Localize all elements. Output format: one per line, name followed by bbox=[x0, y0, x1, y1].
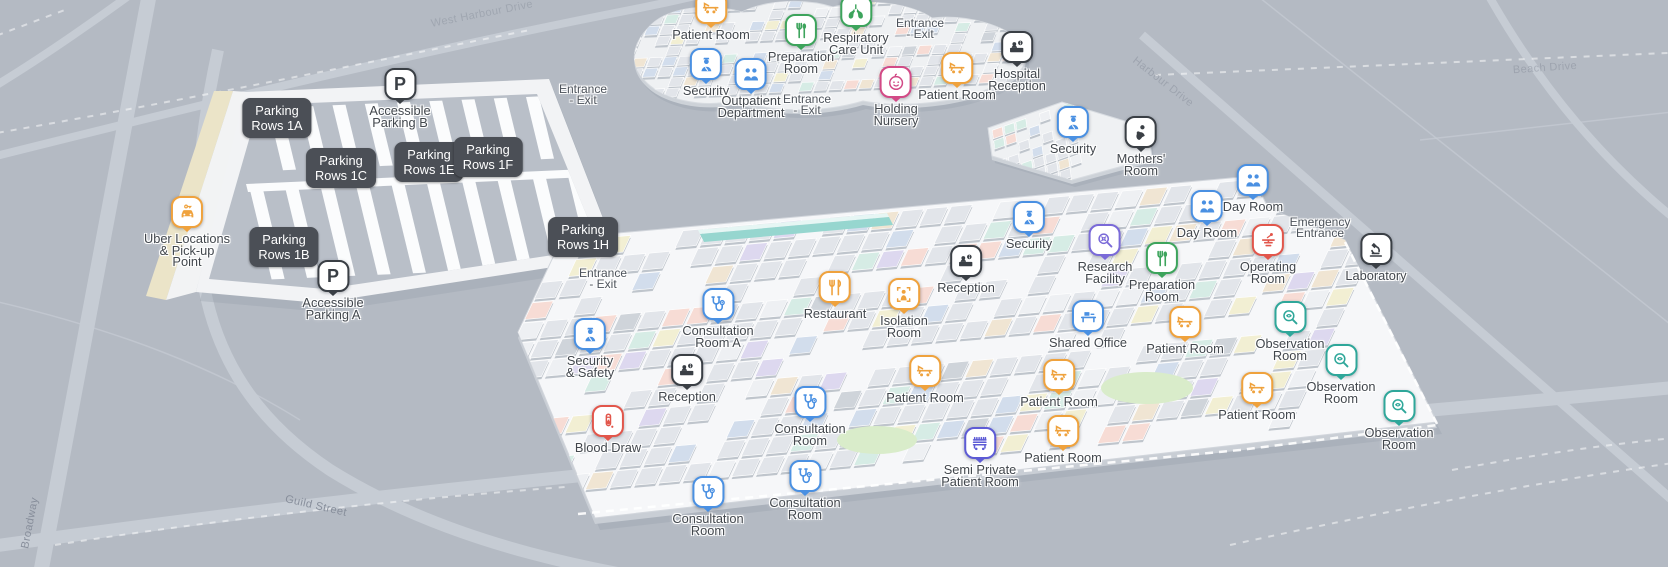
pin-consultation-room-1[interactable]: Consultation Room bbox=[774, 386, 845, 446]
microscope-icon bbox=[1360, 233, 1392, 265]
map-overlay: BroadwayGuild StreetHarbour DriveBeach D… bbox=[0, 0, 1668, 567]
pin-security-east[interactable]: Security bbox=[1050, 106, 1096, 155]
pin-label: Hospital Reception bbox=[988, 68, 1046, 91]
steth-icon bbox=[702, 288, 734, 320]
pin-outpatient-department[interactable]: Outpatient Department bbox=[718, 58, 785, 118]
bed-icon bbox=[695, 0, 727, 24]
pin-label: Isolation Room bbox=[880, 315, 928, 338]
pin-label: Reception bbox=[937, 282, 995, 294]
eye-icon bbox=[1325, 344, 1357, 376]
chip-parking-rows-1h[interactable]: Parking Rows 1H bbox=[548, 217, 618, 257]
security-icon bbox=[574, 318, 606, 350]
pin-research-facility[interactable]: Research Facility bbox=[1078, 224, 1133, 284]
pin-patient-room-n1[interactable]: Patient Room bbox=[672, 0, 750, 41]
pin-semi-private-patient-room[interactable]: Semi Private Patient Room bbox=[941, 427, 1019, 487]
pin-mothers-room[interactable]: Mothers' Room bbox=[1117, 116, 1166, 176]
pin-label: Shared Office bbox=[1049, 337, 1127, 349]
baby-icon bbox=[880, 66, 912, 98]
label-entrance-exit-north-1: Entrance - Exit bbox=[896, 18, 944, 40]
pin-respiratory-care-unit[interactable]: Respiratory Care Unit bbox=[823, 0, 888, 55]
pin-label: Semi Private Patient Room bbox=[941, 464, 1019, 487]
pin-label: Outpatient Department bbox=[718, 95, 785, 118]
pin-label: Preparation Room bbox=[1129, 279, 1195, 302]
pin-holding-nursery[interactable]: Holding Nursery bbox=[874, 66, 919, 126]
pin-label: Patient Room bbox=[886, 392, 964, 404]
pin-accessible-parking-a[interactable]: PAccessible Parking A bbox=[302, 260, 363, 320]
bed-icon bbox=[1043, 359, 1075, 391]
bed-icon bbox=[1241, 372, 1273, 404]
pin-label: Laboratory bbox=[1345, 270, 1406, 282]
pin-label: Mothers' Room bbox=[1117, 153, 1166, 176]
prep-icon bbox=[785, 14, 817, 46]
pin-label: Patient Room bbox=[672, 29, 750, 41]
people-icon bbox=[1237, 164, 1269, 196]
pin-label: Respiratory Care Unit bbox=[823, 32, 888, 55]
pin-label: Security bbox=[1050, 143, 1096, 155]
pin-label: Security & Safety bbox=[566, 355, 614, 378]
isolation-icon bbox=[888, 278, 920, 310]
eye-icon bbox=[1274, 301, 1306, 333]
pin-hospital-reception[interactable]: Hospital Reception bbox=[988, 31, 1046, 91]
bed-icon bbox=[909, 355, 941, 387]
pin-label: Holding Nursery bbox=[874, 103, 919, 126]
pin-label: Research Facility bbox=[1078, 261, 1133, 284]
prep-icon bbox=[1146, 242, 1178, 274]
pin-label: Patient Room bbox=[1218, 409, 1296, 421]
pin-day-room-2[interactable]: Day Room bbox=[1223, 164, 1283, 213]
operating-icon bbox=[1252, 224, 1284, 256]
pin-label: Day Room bbox=[1177, 227, 1237, 239]
bed-icon bbox=[1047, 415, 1079, 447]
reception-icon bbox=[1001, 31, 1033, 63]
pin-patient-room-5[interactable]: Patient Room bbox=[1024, 415, 1102, 464]
security-icon bbox=[1013, 201, 1045, 233]
pin-label: Restaurant bbox=[804, 308, 867, 320]
pin-restaurant[interactable]: Restaurant bbox=[804, 271, 867, 320]
office-icon bbox=[1072, 300, 1104, 332]
pin-patient-room-1[interactable]: Patient Room bbox=[1146, 306, 1224, 355]
chip-parking-rows-1a[interactable]: Parking Rows 1A bbox=[242, 98, 311, 138]
chip-parking-rows-1f[interactable]: Parking Rows 1F bbox=[454, 137, 523, 177]
label-entrance-exit-north-2: Entrance - Exit bbox=[783, 94, 831, 116]
bed-icon bbox=[941, 52, 973, 84]
mother-icon bbox=[1125, 116, 1157, 148]
pin-shared-office[interactable]: Shared Office bbox=[1049, 300, 1127, 349]
pin-label: Reception bbox=[658, 391, 716, 403]
pin-label: Consultation Room bbox=[672, 513, 743, 536]
steth-icon bbox=[692, 476, 724, 508]
pin-label: Accessible Parking A bbox=[302, 297, 363, 320]
pin-label: Consultation Room bbox=[774, 423, 845, 446]
pin-consultation-room-a[interactable]: Consultation Room A bbox=[682, 288, 753, 348]
pin-isolation-room[interactable]: Isolation Room bbox=[880, 278, 928, 338]
pin-patient-room-4[interactable]: Patient Room bbox=[1218, 372, 1296, 421]
pin-consultation-room-2[interactable]: Consultation Room bbox=[769, 460, 840, 520]
blood-icon bbox=[592, 405, 624, 437]
pin-accessible-parking-b[interactable]: PAccessible Parking B bbox=[369, 68, 430, 128]
pin-label: Consultation Room bbox=[769, 497, 840, 520]
pin-label: Observation Room bbox=[1365, 427, 1434, 450]
pin-operating-room[interactable]: Operating Room bbox=[1240, 224, 1296, 284]
bed-icon bbox=[1169, 306, 1201, 338]
people-icon bbox=[735, 58, 767, 90]
pin-laboratory[interactable]: Laboratory bbox=[1345, 233, 1406, 282]
steth-icon bbox=[794, 386, 826, 418]
pin-label: Operating Room bbox=[1240, 261, 1296, 284]
bedgrid-icon bbox=[964, 427, 996, 459]
label-entrance-exit-parking-1: Entrance - Exit bbox=[559, 84, 607, 106]
pin-label: Blood Draw bbox=[575, 442, 641, 454]
security-icon bbox=[1057, 106, 1089, 138]
pin-label: Consultation Room A bbox=[682, 325, 753, 348]
label-entrance-exit-parking-2: Entrance - Exit bbox=[579, 268, 627, 290]
reception-icon bbox=[671, 354, 703, 386]
pin-security-and-safety[interactable]: Security & Safety bbox=[566, 318, 614, 378]
pin-blood-draw[interactable]: Blood Draw bbox=[575, 405, 641, 454]
pin-label: Day Room bbox=[1223, 201, 1283, 213]
pin-observation-room-3[interactable]: Observation Room bbox=[1365, 390, 1434, 450]
street-label-beach-drive: Beach Drive bbox=[1512, 60, 1577, 76]
car-icon bbox=[171, 196, 203, 228]
street-label-guild-street: Guild Street bbox=[284, 493, 348, 519]
chip-parking-rows-1c[interactable]: Parking Rows 1C bbox=[306, 148, 376, 188]
pin-consultation-room-3[interactable]: Consultation Room bbox=[672, 476, 743, 536]
utensils-icon bbox=[819, 271, 851, 303]
eye-icon bbox=[1383, 390, 1415, 422]
parking-icon: P bbox=[384, 68, 416, 100]
pin-label: Accessible Parking B bbox=[369, 105, 430, 128]
lungs-icon bbox=[840, 0, 872, 27]
reception-icon bbox=[950, 245, 982, 277]
pin-label: Patient Room bbox=[1146, 343, 1224, 355]
pin-patient-room-3[interactable]: Patient Room bbox=[1020, 359, 1098, 408]
pin-preparation-room-c[interactable]: Preparation Room bbox=[1129, 242, 1195, 302]
pin-patient-room-n2[interactable]: Patient Room bbox=[918, 52, 996, 101]
street-label-harbour-drive: Harbour Drive bbox=[1130, 55, 1195, 110]
pin-patient-room-2[interactable]: Patient Room bbox=[886, 355, 964, 404]
pin-label: Patient Room bbox=[1020, 396, 1098, 408]
pin-reception-west[interactable]: Reception bbox=[658, 354, 716, 403]
pin-label: Security bbox=[1006, 238, 1052, 250]
pin-label: Uber Locations & Pick-up Point bbox=[144, 233, 230, 268]
pin-security-center[interactable]: Security bbox=[1006, 201, 1052, 250]
street-label-broadway: Broadway bbox=[19, 496, 41, 549]
label-emergency-entrance: Emergency Entrance bbox=[1290, 217, 1351, 239]
steth-icon bbox=[789, 460, 821, 492]
street-label-west-harbour-drive: West Harbour Drive bbox=[430, 0, 534, 30]
pin-label: Patient Room bbox=[918, 89, 996, 101]
pin-label: Patient Room bbox=[1024, 452, 1102, 464]
parking-icon: P bbox=[317, 260, 349, 292]
pin-uber-pickup-point[interactable]: Uber Locations & Pick-up Point bbox=[144, 196, 230, 268]
research-icon bbox=[1089, 224, 1121, 256]
people-icon bbox=[1191, 190, 1223, 222]
pin-reception-center[interactable]: Reception bbox=[937, 245, 995, 294]
hospital-campus-map[interactable]: BroadwayGuild StreetHarbour DriveBeach D… bbox=[0, 0, 1668, 567]
